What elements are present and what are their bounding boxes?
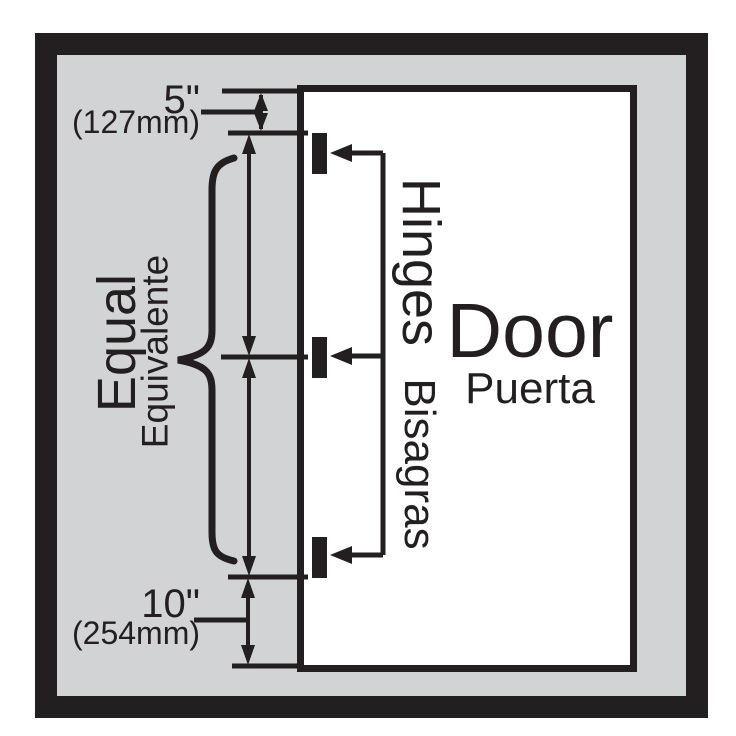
- left-arrow-icon: [330, 144, 352, 162]
- hinge-arrowheads: [330, 144, 352, 564]
- bottom-dimension-metric: (254mm): [55, 617, 200, 649]
- extension-lines: [221, 91, 308, 666]
- top-dimension-metric: (127mm): [55, 106, 200, 138]
- dim-arrow-equal-upper: [242, 134, 256, 356]
- door-label-es: Puerta: [430, 367, 630, 411]
- spacing-label-es: Equivalente: [137, 227, 174, 477]
- door-label-en: Door: [430, 293, 630, 370]
- dim-arrow-equal-lower: [242, 358, 256, 576]
- hinge-pointer-bracket: [349, 153, 383, 555]
- left-arrow-icon: [330, 347, 352, 365]
- left-arrow-icon: [330, 546, 352, 564]
